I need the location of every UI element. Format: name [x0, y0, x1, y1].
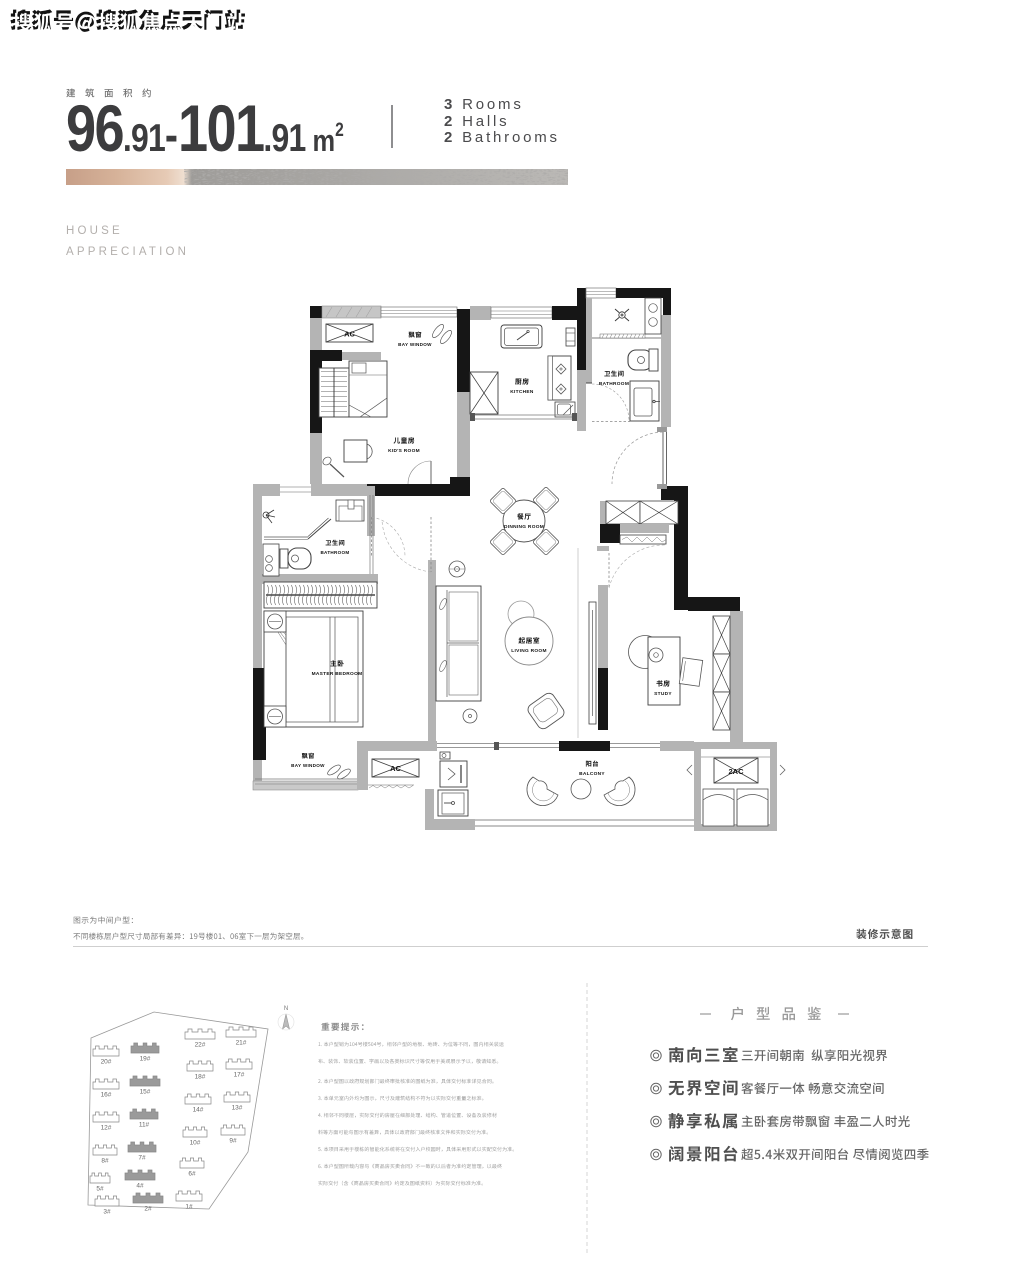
- svg-text:2AC: 2AC: [728, 767, 744, 776]
- svg-text:7#: 7#: [138, 1155, 146, 1162]
- svg-text:AC: AC: [344, 330, 355, 339]
- svg-text:DINNING ROOM: DINNING ROOM: [504, 524, 544, 530]
- svg-text:LIVING ROOM: LIVING ROOM: [511, 648, 547, 654]
- svg-text:18#: 18#: [195, 1074, 206, 1081]
- svg-text:STUDY: STUDY: [654, 691, 672, 697]
- svg-text:4#: 4#: [136, 1183, 144, 1190]
- svg-text:12#: 12#: [101, 1125, 112, 1132]
- svg-text:1#: 1#: [185, 1204, 193, 1211]
- svg-text:MASTER BEDROOM: MASTER BEDROOM: [312, 671, 363, 677]
- svg-text:6#: 6#: [188, 1171, 196, 1178]
- svg-text:17#: 17#: [234, 1072, 245, 1079]
- svg-text:BAY WINDOW: BAY WINDOW: [291, 763, 325, 768]
- svg-text:9#: 9#: [229, 1138, 237, 1145]
- svg-text:2#: 2#: [144, 1206, 152, 1213]
- svg-text:21#: 21#: [236, 1040, 247, 1047]
- svg-text:BAY WINDOW: BAY WINDOW: [398, 342, 432, 347]
- svg-text:11#: 11#: [139, 1122, 150, 1129]
- svg-text:22#: 22#: [195, 1042, 206, 1049]
- svg-text:5#: 5#: [96, 1186, 104, 1193]
- svg-text:20#: 20#: [101, 1059, 112, 1066]
- svg-text:14#: 14#: [193, 1107, 204, 1114]
- svg-text:3#: 3#: [103, 1209, 111, 1216]
- svg-text:13#: 13#: [232, 1105, 243, 1112]
- svg-text:15#: 15#: [140, 1089, 151, 1096]
- svg-text:16#: 16#: [101, 1092, 112, 1099]
- svg-text:8#: 8#: [101, 1158, 109, 1165]
- svg-text:BALCONY: BALCONY: [579, 771, 605, 777]
- svg-text:KID'S ROOM: KID'S ROOM: [388, 448, 420, 454]
- svg-text:AC: AC: [390, 764, 401, 773]
- svg-text:KITCHEN: KITCHEN: [510, 389, 534, 395]
- svg-text:BATHROOM: BATHROOM: [599, 381, 629, 387]
- svg-text:N: N: [284, 1006, 288, 1012]
- svg-text:BATHROOM: BATHROOM: [320, 550, 349, 555]
- svg-text:19#: 19#: [140, 1056, 151, 1063]
- svg-text:10#: 10#: [190, 1140, 201, 1147]
